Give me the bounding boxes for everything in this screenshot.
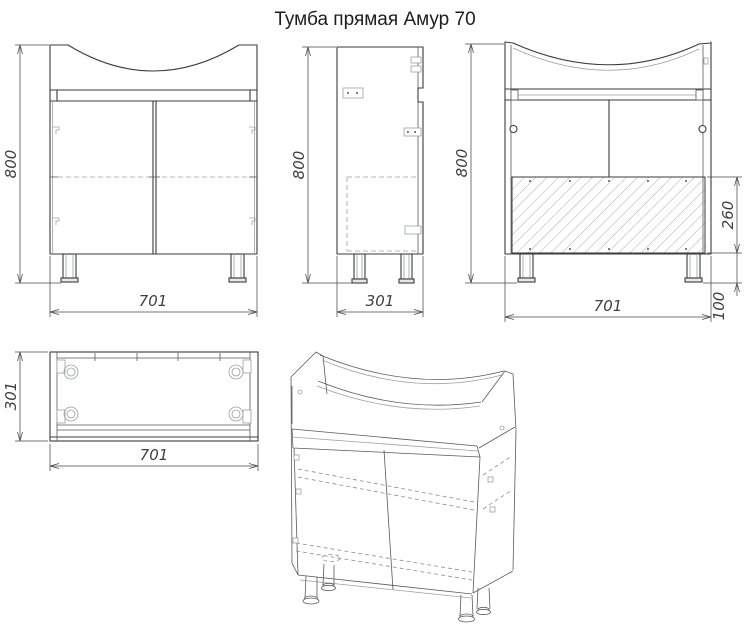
hinge-marks (53, 127, 255, 225)
dim-label-side-height: 800 (290, 151, 308, 180)
top-view (50, 352, 258, 441)
dim-back-width: 701 (505, 256, 711, 322)
technical-drawing-canvas: Тумба прямая Амур 70 800 701 (0, 0, 750, 626)
door-cam-locks (510, 126, 706, 133)
back-legs (518, 254, 702, 282)
dim-top-width: 701 (50, 444, 258, 471)
back-panel-hatched (512, 177, 705, 253)
dim-label-back-height: 800 (453, 149, 471, 178)
dim-back-height: 800 (453, 44, 517, 283)
dim-side-height: 800 (290, 47, 352, 283)
dim-label-front-width: 701 (139, 292, 168, 310)
dim-label-front-height: 800 (2, 150, 20, 179)
dim-label-back-panel-height: 260 (719, 201, 737, 230)
dim-label-leg-height: 100 (710, 292, 728, 321)
drawing-sheet: Тумба прямая Амур 70 800 701 (0, 0, 750, 626)
dim-label-back-width: 701 (594, 297, 623, 315)
back-view (505, 42, 711, 282)
page-title: Тумба прямая Амур 70 (274, 9, 475, 30)
dim-label-top-width: 701 (140, 446, 169, 464)
iso-view (291, 352, 516, 622)
side-view (337, 47, 423, 283)
front-legs (61, 254, 246, 282)
dim-leg-height: 100 (703, 253, 742, 320)
side-legs (352, 254, 414, 283)
iso-hardware-marks (293, 390, 504, 543)
front-view (50, 45, 257, 282)
cam-fittings (343, 57, 421, 234)
dim-front-width: 701 (50, 256, 257, 317)
dim-label-top-depth: 301 (2, 382, 20, 411)
dim-top-depth: 301 (2, 352, 48, 441)
dim-label-side-depth: 301 (366, 292, 395, 310)
dim-back-panel-height: 260 (707, 177, 742, 253)
